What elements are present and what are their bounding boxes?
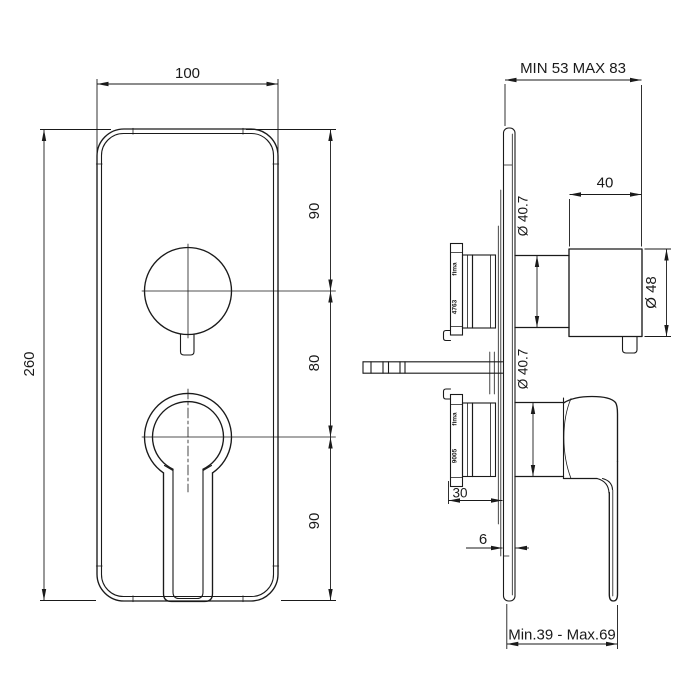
faceplate-corner-tangent-ticks bbox=[96, 128, 278, 601]
dim-lower-valve-diameter-label: Ø 40.7 bbox=[516, 349, 531, 390]
dim-depth-range-label: MIN 53 MAX 83 bbox=[520, 60, 626, 77]
dim-cartridge-depth: 30 bbox=[449, 481, 503, 504]
dim-segment-bottom-label: 90 bbox=[306, 513, 323, 530]
faceplate-profile-ticks bbox=[504, 165, 513, 556]
dim-plate-width-label: 100 bbox=[175, 65, 200, 82]
technical-drawing-page: 100 260 90 80 90 bbox=[0, 0, 700, 700]
dim-lower-valve-diameter: Ø 40.7 bbox=[516, 349, 534, 477]
faceplate-outer-outline bbox=[97, 129, 278, 601]
lever-body-fillet bbox=[564, 399, 571, 479]
diverter-knob-tab bbox=[181, 335, 195, 356]
upper-cartridge-foot bbox=[444, 331, 451, 341]
dim-knob-depth-label: 40 bbox=[597, 175, 614, 192]
supply-pipe bbox=[363, 352, 503, 394]
lever-blade bbox=[609, 462, 617, 602]
lever-body-top-edge bbox=[564, 397, 618, 462]
upper-cartridge-code-label: 4763 bbox=[452, 299, 459, 314]
lever-handle-profile bbox=[515, 397, 618, 602]
dim-plate-height-label: 260 bbox=[21, 351, 38, 376]
dim-handle-projection-label: Min.39 - Max.69 bbox=[508, 627, 616, 644]
dim-segment-top-label: 90 bbox=[306, 203, 323, 220]
dim-plate-thickness-label: 6 bbox=[479, 531, 487, 548]
dim-upper-valve-diameter: Ø 40.7 bbox=[516, 196, 538, 328]
dim-knob-diameter-label: Ø 48 bbox=[643, 276, 660, 309]
shower-mixer-technical-drawing: 100 260 90 80 90 bbox=[0, 0, 700, 700]
lower-cartridge-tab bbox=[444, 389, 451, 399]
faceplate-inner-outline bbox=[102, 134, 274, 597]
dim-plate-segments: 90 80 90 bbox=[246, 130, 336, 601]
dim-knob-depth: 40 bbox=[570, 175, 642, 247]
dim-upper-valve-diameter-label: Ø 40.7 bbox=[516, 196, 531, 237]
dim-segment-middle-label: 80 bbox=[306, 355, 323, 372]
lower-cartridge: fima 9005 bbox=[444, 389, 496, 487]
upper-cartridge: fima 4763 bbox=[444, 244, 496, 341]
dim-knob-diameter: Ø 48 bbox=[643, 249, 671, 337]
dim-plate-thickness: 6 bbox=[466, 531, 529, 548]
dim-plate-width: 100 bbox=[97, 65, 278, 157]
lower-cartridge-code-label: 9005 bbox=[452, 448, 459, 463]
diverter-knob-tab-profile bbox=[623, 337, 638, 354]
dim-cartridge-depth-label: 30 bbox=[452, 486, 467, 501]
side-view: fima 4763 fima 9005 bbox=[363, 60, 671, 649]
diverter-knob-profile bbox=[515, 249, 642, 353]
dim-handle-projection: Min.39 - Max.69 bbox=[507, 604, 618, 649]
faceplate-profile bbox=[504, 128, 516, 601]
lower-cartridge-brand-label: fima bbox=[452, 412, 459, 426]
front-view: 100 260 90 80 90 bbox=[21, 65, 336, 602]
upper-cartridge-brand-label: fima bbox=[452, 262, 459, 276]
